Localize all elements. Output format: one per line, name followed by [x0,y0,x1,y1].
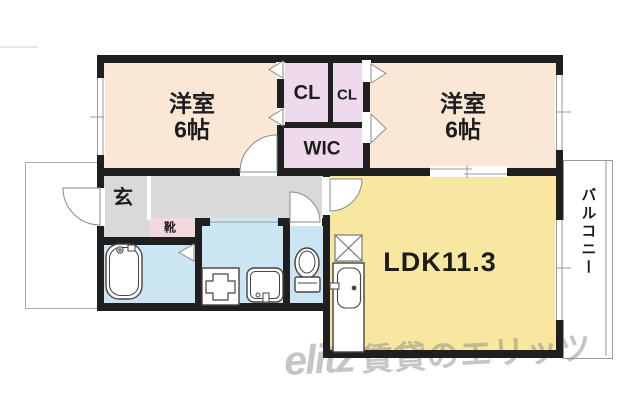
wall-bottom-left [97,303,330,311]
room-toilet [290,218,323,303]
wall-washroom-top-c [322,218,330,226]
front-door-gap [96,188,105,226]
closetR-door-gap-1 [362,60,371,82]
window-ldk-balcony [555,220,564,320]
wall-ldk-top-b [507,168,563,176]
label-bedroom-right: 洋室 6帖 [440,91,486,143]
entrance-porch-outline [25,162,101,309]
bedroom-left-size: 6帖 [169,117,215,143]
entrance-step-line [147,176,151,220]
label-balcony: バルコニー [579,187,596,277]
closetL-door-gap-2 [276,108,285,125]
wall-closetL-b [277,125,284,176]
closetR-door-gap-2 [362,112,371,143]
bedroom-right-size: 6帖 [440,117,486,143]
sliding-door-bedroom-ldk [430,166,507,177]
toilet-door-gap [290,217,322,226]
wall-bath-divider [195,218,202,303]
wall-closet-bottom [284,122,363,128]
wall-ldk-left-lower [323,215,330,358]
ldk-door-gap [322,177,331,215]
floorplan: elitz 賃貸のエリッツ [0,0,640,416]
wall-bottom-right [323,350,563,358]
bedroom-left-name: 洋室 [169,91,215,117]
room-bathroom [104,245,195,303]
room-washroom [202,218,283,303]
wall-closet-divider [328,62,333,122]
wall-bath-top [97,237,195,245]
wall-ldk-top-a [330,168,430,176]
label-entrance: 玄 [113,187,133,209]
label-closet-left: CL [294,82,321,104]
watermark-logo: elitz [283,334,355,385]
wall-hall-top-b [277,168,330,176]
room-hallway [104,176,323,222]
closetL-door-gap-1 [276,62,285,79]
wall-closetR-b [363,143,370,176]
wall-closetL-a [277,79,284,108]
bedroom-right-name: 洋室 [440,91,486,117]
label-ldk: LDK11.3 [383,247,497,277]
label-bedroom-left: 洋室 6帖 [169,91,215,143]
wall-toilet-left [283,218,290,303]
wall-hall-top-a [97,168,240,176]
label-shoe-cabinet: 靴 [164,221,176,234]
window-bedroom-left [96,78,105,155]
window-bedroom-right [555,75,564,150]
wall-closetR-a [363,82,370,112]
label-closet-right: CL [337,88,357,105]
label-wic: WIC [304,138,341,159]
